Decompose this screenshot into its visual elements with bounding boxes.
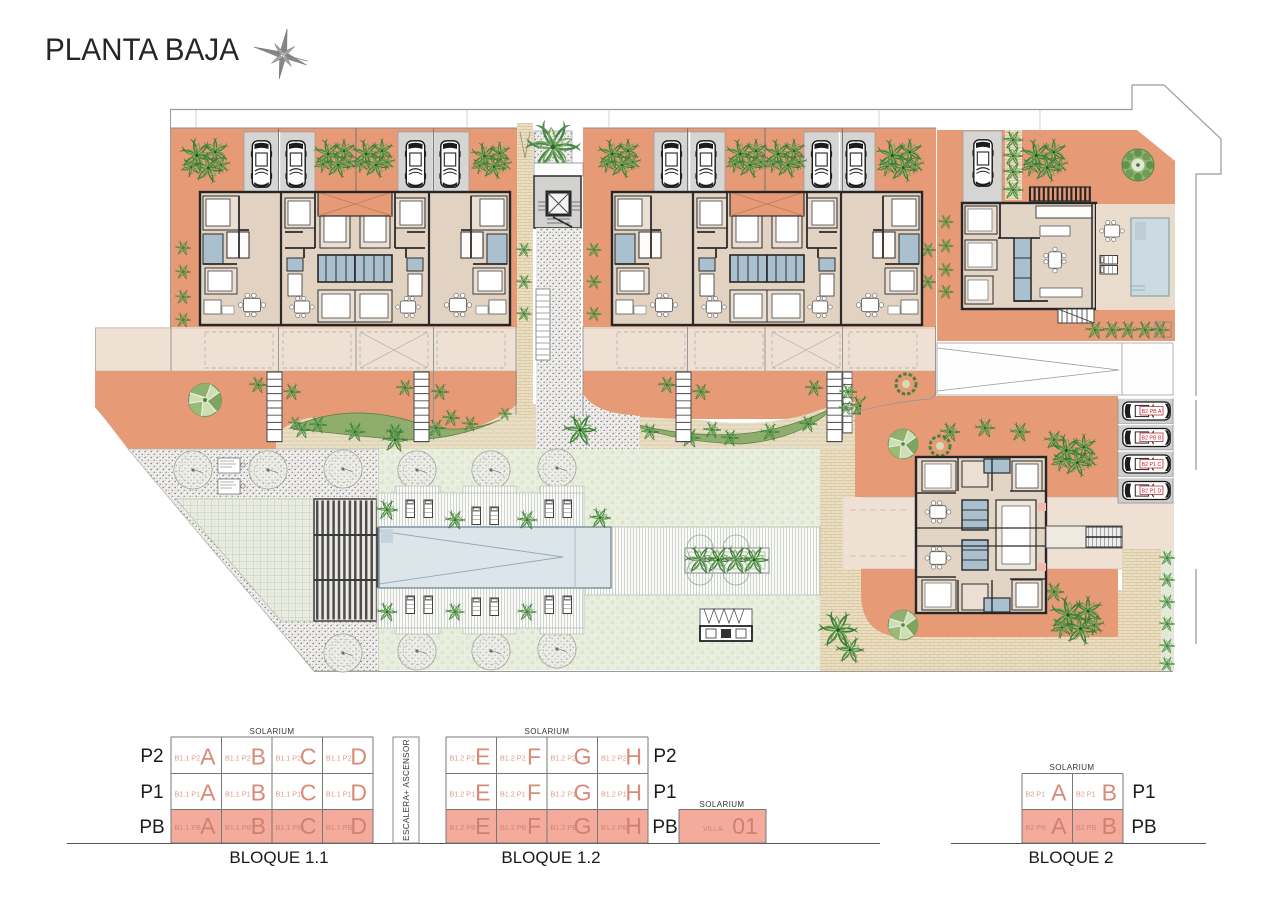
svg-text:B: B: [1102, 780, 1117, 806]
svg-text:P1: P1: [653, 782, 676, 803]
svg-text:P2: P2: [653, 746, 676, 767]
svg-text:B: B: [251, 780, 266, 806]
svg-text:P1: P1: [1132, 782, 1155, 803]
svg-text:C: C: [300, 780, 317, 806]
svg-text:B2 P1: B2 P1: [1076, 790, 1096, 799]
svg-text:B1.1 P1: B1.1 P1: [225, 790, 251, 799]
svg-text:SOLARIUM: SOLARIUM: [525, 727, 570, 736]
svg-text:D: D: [350, 780, 367, 806]
svg-text:D: D: [350, 813, 367, 839]
svg-text:B1.1 P2: B1.1 P2: [276, 754, 302, 763]
svg-text:A: A: [1051, 813, 1067, 839]
svg-text:BLOQUE 2: BLOQUE 2: [1028, 848, 1113, 867]
svg-text:B1.2 PB: B1.2 PB: [450, 823, 477, 832]
svg-text:A: A: [200, 780, 216, 806]
svg-text:B1.1 PB: B1.1 PB: [276, 823, 303, 832]
svg-text:BLOQUE 1.2: BLOQUE 1.2: [501, 848, 600, 867]
svg-text:B1.1 P1: B1.1 P1: [326, 790, 352, 799]
svg-text:PB: PB: [139, 817, 164, 838]
svg-text:B1.2 PB: B1.2 PB: [500, 823, 527, 832]
svg-text:B2 PB B: B2 PB B: [1141, 436, 1161, 442]
svg-text:F: F: [527, 744, 541, 770]
svg-text:SOLARIUM: SOLARIUM: [700, 800, 745, 809]
svg-text:G: G: [574, 744, 592, 770]
svg-text:B1.1 P2: B1.1 P2: [326, 754, 352, 763]
svg-text:B1.2 P2: B1.2 P2: [551, 754, 577, 763]
svg-text:G: G: [574, 780, 592, 806]
svg-text:B1.1 P2: B1.1 P2: [175, 754, 201, 763]
svg-text:SOLARIUM: SOLARIUM: [1050, 763, 1095, 772]
svg-text:B1.2 P1: B1.2 P1: [450, 790, 476, 799]
svg-text:B2 P1: B2 P1: [1026, 790, 1046, 799]
svg-text:A: A: [200, 744, 216, 770]
svg-text:B1.2 PB: B1.2 PB: [551, 823, 578, 832]
svg-text:B1.2 P1: B1.2 P1: [500, 790, 526, 799]
svg-text:B1.2 P1: B1.2 P1: [601, 790, 627, 799]
svg-text:A: A: [200, 813, 216, 839]
svg-text:ESCALERA+ ASCENSOR: ESCALERA+ ASCENSOR: [402, 739, 411, 841]
svg-text:B1.2 P2: B1.2 P2: [450, 754, 476, 763]
svg-text:B2 P1 C: B2 P1 C: [1142, 462, 1162, 468]
svg-text:B2 PB: B2 PB: [1076, 823, 1097, 832]
svg-text:B1.2 P2: B1.2 P2: [500, 754, 526, 763]
svg-text:F: F: [527, 813, 541, 839]
svg-text:B: B: [1102, 813, 1117, 839]
svg-text:C: C: [300, 813, 317, 839]
svg-text:B1.1 PB: B1.1 PB: [225, 823, 252, 832]
svg-text:01: 01: [732, 813, 758, 839]
svg-text:B: B: [251, 813, 266, 839]
svg-text:E: E: [475, 744, 490, 770]
svg-text:SOLARIUM: SOLARIUM: [250, 727, 295, 736]
svg-text:BLOQUE 1.1: BLOQUE 1.1: [229, 848, 328, 867]
svg-text:B2 P1 D: B2 P1 D: [1142, 489, 1162, 495]
svg-text:H: H: [625, 813, 642, 839]
svg-text:H: H: [625, 744, 642, 770]
svg-text:P2: P2: [140, 746, 163, 767]
svg-text:H: H: [625, 780, 642, 806]
svg-text:E: E: [475, 780, 490, 806]
svg-text:C: C: [300, 744, 317, 770]
svg-text:B: B: [251, 744, 266, 770]
svg-text:P1: P1: [140, 782, 163, 803]
svg-text:PLANTA BAJA: PLANTA BAJA: [45, 31, 239, 67]
svg-text:B1.2 P1: B1.2 P1: [551, 790, 577, 799]
svg-text:B1.1 P1: B1.1 P1: [276, 790, 302, 799]
svg-text:B2 PB A: B2 PB A: [1142, 409, 1162, 415]
svg-text:PB: PB: [1131, 817, 1156, 838]
svg-text:B1.1 P1: B1.1 P1: [175, 790, 201, 799]
svg-text:E: E: [475, 813, 490, 839]
svg-text:B2 PB: B2 PB: [1026, 823, 1047, 832]
svg-text:VILLA: VILLA: [703, 824, 723, 833]
svg-text:B1.1 PB: B1.1 PB: [326, 823, 353, 832]
svg-text:PB: PB: [652, 817, 677, 838]
svg-text:A: A: [1051, 780, 1067, 806]
svg-text:D: D: [350, 744, 367, 770]
svg-text:F: F: [527, 780, 541, 806]
svg-text:B1.1 P2: B1.1 P2: [225, 754, 251, 763]
svg-text:B1.1 PB: B1.1 PB: [175, 823, 202, 832]
svg-text:B1.2 P2: B1.2 P2: [601, 754, 627, 763]
svg-text:B1.2 PB: B1.2 PB: [601, 823, 628, 832]
